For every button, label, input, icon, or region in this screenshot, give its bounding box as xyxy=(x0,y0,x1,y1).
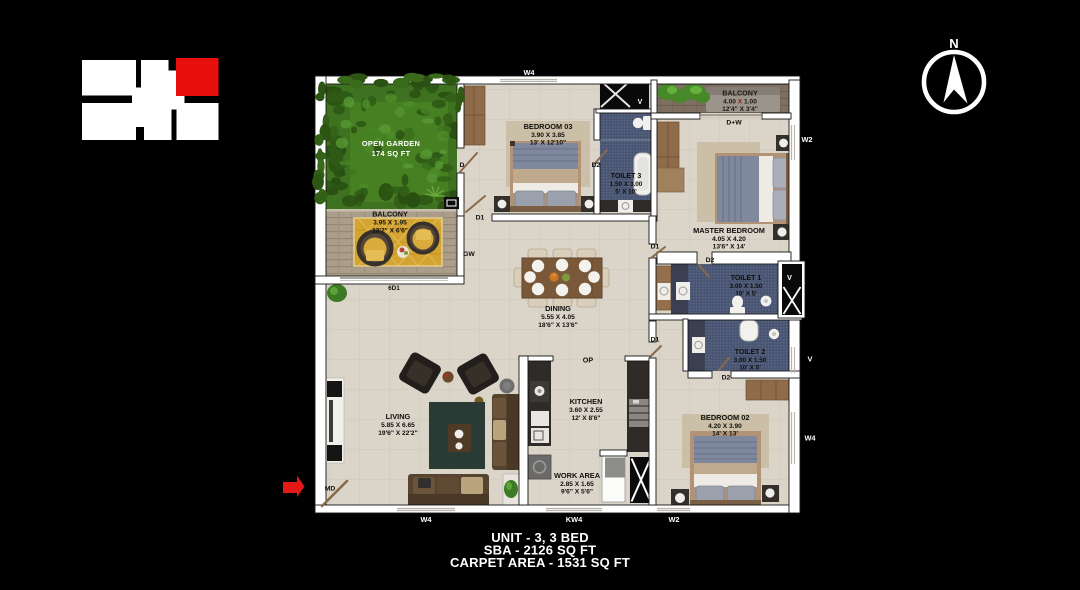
svg-text:W4: W4 xyxy=(804,434,816,443)
svg-text:CARPET AREA - 1531 SQ FT: CARPET AREA - 1531 SQ FT xyxy=(450,555,630,570)
svg-text:W4: W4 xyxy=(420,515,432,524)
svg-text:174 SQ FT: 174 SQ FT xyxy=(372,149,411,158)
svg-text:13' X 12'10": 13' X 12'10" xyxy=(530,139,566,146)
svg-text:D+W: D+W xyxy=(726,120,742,127)
svg-text:D2: D2 xyxy=(706,257,715,264)
svg-text:WORK AREA: WORK AREA xyxy=(554,471,601,480)
svg-text:W2: W2 xyxy=(801,135,812,144)
svg-text:3.00 X 1.50: 3.00 X 1.50 xyxy=(734,357,767,364)
svg-text:D: D xyxy=(460,162,465,169)
svg-text:V: V xyxy=(787,273,792,282)
svg-text:D1: D1 xyxy=(651,244,660,251)
svg-text:N: N xyxy=(949,36,958,51)
svg-text:4.20 X 3.90: 4.20 X 3.90 xyxy=(708,423,742,430)
svg-text:W2: W2 xyxy=(668,515,679,524)
svg-text:4.00 X 1.00: 4.00 X 1.00 xyxy=(723,99,757,106)
svg-text:GW: GW xyxy=(463,251,475,258)
svg-text:OP: OP xyxy=(583,356,594,365)
svg-text:5' X 10': 5' X 10' xyxy=(615,189,637,196)
svg-text:13'6" X 14': 13'6" X 14' xyxy=(713,244,746,251)
svg-text:6D1: 6D1 xyxy=(388,285,400,292)
svg-text:3.90 X 3.85: 3.90 X 3.85 xyxy=(531,132,565,139)
svg-text:5.85 X 6.65: 5.85 X 6.65 xyxy=(381,422,415,429)
svg-text:10' X 5': 10' X 5' xyxy=(735,291,757,298)
svg-text:DINING: DINING xyxy=(545,304,571,313)
svg-text:TOILET 1: TOILET 1 xyxy=(731,275,762,282)
svg-text:BALCONY: BALCONY xyxy=(372,210,408,219)
svg-text:KITCHEN: KITCHEN xyxy=(570,397,603,406)
svg-text:5.55 X 4.05: 5.55 X 4.05 xyxy=(541,314,575,321)
svg-text:19'6" X 22'2": 19'6" X 22'2" xyxy=(378,430,417,437)
svg-text:10' X 5': 10' X 5' xyxy=(739,365,761,372)
svg-text:12'4" X 3'4": 12'4" X 3'4" xyxy=(722,106,758,113)
svg-text:V: V xyxy=(808,355,813,364)
svg-text:KW4: KW4 xyxy=(566,515,583,524)
svg-text:BALCONY: BALCONY xyxy=(722,89,758,98)
svg-text:LIVING: LIVING xyxy=(386,412,411,421)
svg-text:OPEN GARDEN: OPEN GARDEN xyxy=(362,139,420,148)
svg-text:12' X 8'6": 12' X 8'6" xyxy=(572,415,601,422)
svg-text:V: V xyxy=(638,99,643,106)
svg-text:3.00 X 1.50: 3.00 X 1.50 xyxy=(730,283,763,290)
svg-text:D2: D2 xyxy=(592,162,601,169)
svg-text:18'6" X 13'6": 18'6" X 13'6" xyxy=(538,322,577,329)
svg-text:D1: D1 xyxy=(476,215,485,222)
svg-text:TOILET 2: TOILET 2 xyxy=(735,349,766,356)
svg-text:W4: W4 xyxy=(523,68,535,77)
svg-text:TOILET 3: TOILET 3 xyxy=(611,173,642,180)
svg-text:MASTER BEDROOM: MASTER BEDROOM xyxy=(693,226,765,235)
svg-text:3.60 X 2.55: 3.60 X 2.55 xyxy=(569,407,603,414)
svg-text:MD: MD xyxy=(325,486,336,493)
svg-text:1.50 X 3.00: 1.50 X 3.00 xyxy=(610,181,643,188)
svg-text:D2: D2 xyxy=(722,375,731,382)
svg-text:9'6" X 5'6": 9'6" X 5'6" xyxy=(561,489,593,496)
svg-text:2.85 X 1.65: 2.85 X 1.65 xyxy=(560,481,594,488)
svg-text:D1: D1 xyxy=(651,337,660,344)
svg-text:3.95 X 1.95: 3.95 X 1.95 xyxy=(373,220,407,227)
svg-text:BEDROOM 03: BEDROOM 03 xyxy=(524,122,573,131)
svg-text:4.05 X 4.20: 4.05 X 4.20 xyxy=(712,236,746,243)
svg-text:14' X 13': 14' X 13' xyxy=(712,431,738,438)
svg-text:13'2" X 6'6": 13'2" X 6'6" xyxy=(372,228,408,235)
svg-text:BEDROOM 02: BEDROOM 02 xyxy=(701,413,750,422)
